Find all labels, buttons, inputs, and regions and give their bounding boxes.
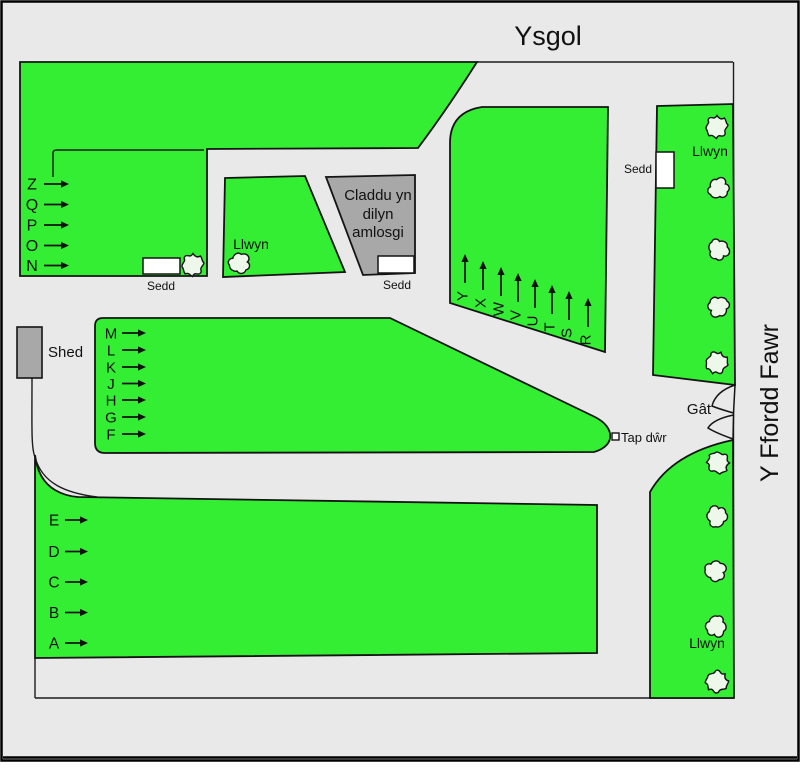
cremation-label-line1: Claddu yn [344,187,412,204]
section-row-label: K [106,360,116,377]
section-row-label: X [473,298,490,308]
bush-icon [706,116,728,139]
bush-icon [707,452,730,474]
section-row-label: N [26,258,38,275]
map-canvas: Ysgol Y Ffordd Fawr Claddu yn dilyn amlo… [0,0,800,763]
seat-marker-cremation [378,256,414,273]
section-row-label: Q [26,197,38,214]
cremation-label-line2: dilyn [363,206,394,223]
seat-label-north: Sedd [147,279,175,293]
seat-marker-north [143,258,180,274]
section-row-label: P [27,218,38,235]
section-row-label: M [105,326,118,343]
section-row-label: R [578,334,595,345]
map-title: Ysgol [514,21,582,51]
section-row-label: L [107,343,115,360]
section-row-label: Z [27,177,37,194]
section-row-label: A [49,636,60,653]
section-row-label: E [49,513,59,530]
section-row-label: D [48,544,59,561]
llwyn-label-southeast: Llwyn [689,635,725,651]
seat-marker-east [656,152,674,188]
water-tap-label: Tap dŵr [621,430,667,445]
llwyn-label-northeast: Llwyn [692,143,728,159]
main-road-label: Y Ffordd Fawr [756,324,784,482]
section-row-label: C [48,575,59,592]
shed-label: Shed [48,344,83,361]
section-row-label: V [508,310,525,320]
llwyn-label-mid: Llwyn [233,236,269,252]
section-row-label: W [491,301,508,316]
gate-label: Gât [687,401,712,418]
water-tap-icon [612,433,619,440]
shed-building [17,327,42,378]
bush-icon [182,254,204,277]
section-row-label: B [49,605,59,622]
section-row-label: U [525,316,542,327]
section-row-label: T [542,322,559,331]
section-row-label: J [107,376,115,393]
section-row-label: H [106,393,117,410]
cremation-label-line3: amlosgi [352,224,404,241]
section-row-label: G [105,410,117,427]
section-row-label: Y [455,291,472,301]
seat-label-cremation: Sedd [383,278,411,292]
cemetery-map: Ysgol Y Ffordd Fawr Claddu yn dilyn amlo… [0,0,800,763]
section-row-label: S [559,328,576,338]
section-row-label: O [26,238,38,255]
seat-label-east: Sedd [624,162,652,176]
section-row-label: F [106,427,115,444]
